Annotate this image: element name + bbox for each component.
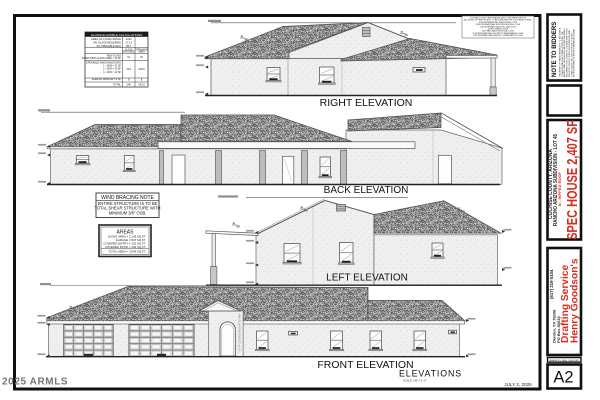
svg-text:(817) 319-5104: (817) 319-5104: [549, 269, 554, 299]
svg-text:COCHISE COUNTY, ARIZONA: COCHISE COUNTY, ARIZONA: [548, 149, 554, 219]
svg-text:171.4: 171.4: [125, 41, 132, 45]
svg-text:4% OPENABLE REQ: 4% OPENABLE REQ: [96, 44, 121, 48]
svg-text:LEFT ELEVATION: LEFT ELEVATION: [326, 273, 408, 284]
svg-text:SPEC HOUSE 2,407 SF: SPEC HOUSE 2,407 SF: [563, 120, 580, 240]
svg-text:BACK ELEVATION: BACK ELEVATION: [324, 185, 409, 196]
svg-text:246: 246: [127, 82, 132, 86]
svg-text:2025 ARMLS: 2025 ARMLS: [2, 377, 68, 388]
svg-text:NOTE TO BIDDERS: NOTE TO BIDDERS: [552, 22, 558, 77]
svg-text:EGRESS WINDOW = 8 SF: EGRESS WINDOW = 8 SF: [92, 78, 121, 81]
svg-text:85.7: 85.7: [126, 44, 132, 48]
svg-text:193.5: 193.5: [138, 82, 145, 86]
svg-text:ELEVATIONS: ELEVATIONS: [399, 369, 462, 379]
svg-text:JULY 2, 2025: JULY 2, 2025: [504, 382, 532, 387]
svg-text:FIXED WIND GLASS USED = 40 SF: FIXED WIND GLASS USED = 40 SF: [82, 57, 122, 60]
svg-text:GLASS/GLAZABLE CALCULATIONS: GLASS/GLAZABLE CALCULATIONS: [91, 33, 143, 37]
svg-text:8% GLASS REQUIRED: 8% GLASS REQUIRED: [93, 41, 121, 45]
svg-text:AREA OF LIVING SPACE: AREA OF LIVING SPACE: [91, 37, 121, 41]
svg-text:Drafting Service: Drafting Service: [560, 265, 571, 343]
svg-text:2018 INTERNATIONAL ENERGY CONS: 2018 INTERNATIONAL ENERGY CONSERVATION C…: [473, 34, 523, 37]
svg-text:Denton, TX 76206: Denton, TX 76206: [552, 309, 557, 343]
svg-text:RIGHT ELEVATION: RIGHT ELEVATION: [320, 97, 413, 109]
svg-text:SCALE: 1/8" = 1'-0": SCALE: 1/8" = 1'-0": [403, 378, 426, 382]
svg-text:Henry Goodson's: Henry Goodson's: [570, 258, 581, 343]
svg-text:DRAWN BY: HMG CHECKED: DRAWN BY: HMG CHECKED: [549, 359, 579, 362]
svg-text:PROVIDED: PROVIDED: [123, 52, 135, 54]
svg-text:MINIMUM 3/8" OSB.: MINIMUM 3/8" OSB.: [109, 210, 147, 215]
svg-text:219: 219: [127, 67, 132, 71]
svg-text:2143: 2143: [126, 37, 132, 41]
svg-text:109.5: 109.5: [138, 67, 145, 71]
svg-text:AREA: AREA: [138, 51, 145, 54]
svg-text:TOTAL AREA = 3,546 SQ.FT.: TOTAL AREA = 3,546 SQ.FT.: [108, 249, 146, 253]
svg-text:TOTAL: TOTAL: [113, 82, 122, 86]
svg-text:10'-4" CEILING HEIGHT ENTRY: 10'-4" CEILING HEIGHT ENTRY: [238, 313, 242, 351]
svg-text:A2: A2: [553, 369, 573, 387]
svg-text:NOTIFY DESIGNER OF ANY DISCREP: NOTIFY DESIGNER OF ANY DISCREPANCIES FOU…: [573, 28, 576, 77]
svg-text:3 - 2030 = 12 SF: 3 - 2030 = 12 SF: [103, 71, 121, 74]
svg-text:COVERED PATIO = 404 SQ.FT.: COVERED PATIO = 404 SQ.FT.: [105, 245, 146, 249]
